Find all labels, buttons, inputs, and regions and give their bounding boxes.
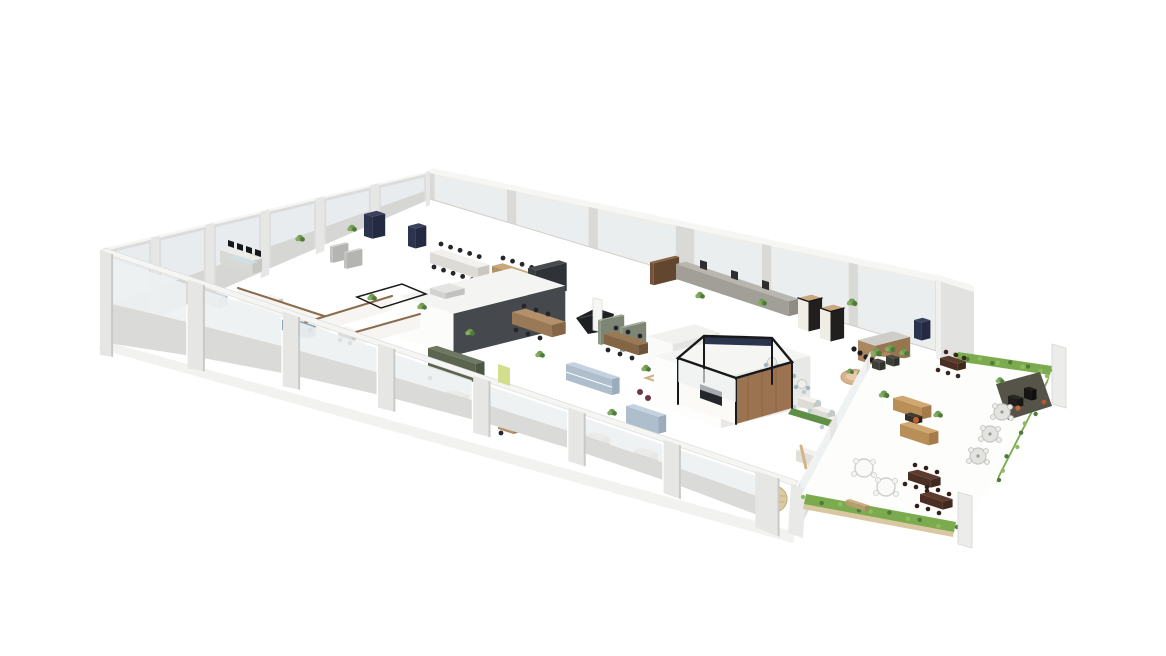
office-chair [926,507,931,512]
plant [933,413,937,417]
plant [899,351,903,355]
pillar-shade [679,445,681,499]
plant [884,393,889,398]
core-a [400,268,565,356]
plant [870,351,875,356]
plant [876,351,882,357]
plant [641,367,645,371]
plant [535,353,539,357]
plant [607,411,611,415]
plant [422,305,427,310]
pillar [378,344,393,412]
outdoor-chair [967,459,972,464]
office-chair [522,304,527,309]
hedge-leaf [917,518,921,522]
navy-cabinet-side [373,214,386,239]
office-chair [830,410,835,415]
outdoor-chair [851,471,856,476]
office-chair [915,504,920,509]
plant [996,379,1000,383]
navy-cabinet-side [416,226,427,249]
outdoor-chair [875,477,880,482]
parasol-pole [1000,410,1003,413]
office-chair [614,326,619,331]
office-chair [956,374,961,379]
outdoor-chair [892,478,897,483]
hedge-leaf [997,478,1001,482]
outdoor-chair [1008,405,1013,410]
plant [757,301,761,305]
plant [938,413,943,418]
office-chair [458,248,463,253]
phone-booth-front [820,308,831,342]
office-chair [851,346,856,351]
navy-cabinet-front [408,226,416,249]
wood-slat-partition-front [650,262,654,285]
office-chair [962,356,967,361]
pillar-shade [393,349,395,412]
fire-pit [913,417,919,423]
office-chair [514,328,519,333]
hedge-leaf [1026,364,1030,368]
pillar [473,376,488,437]
blue-shelving-side [612,377,620,395]
plant [695,294,699,298]
hedge-leaf [801,495,805,499]
office-chair [439,242,444,247]
plant [850,370,854,374]
office-chair [638,334,643,339]
floorplan-stage: 3D cutaway floor plan of an office with … [0,0,1166,656]
plant [846,370,849,373]
office-chair [501,256,506,261]
trellis-divider-front [598,320,601,345]
planter-box-side [880,361,886,370]
outdoor-chair [870,459,875,464]
hedge-leaf [1023,421,1027,425]
outdoor-chair [993,404,998,409]
outdoor-chair [981,426,986,431]
outdoor-chair [853,458,858,463]
plant [300,237,305,242]
plant [847,301,852,306]
office-chair [526,332,531,337]
pillar-shade [298,317,300,390]
plant [470,331,475,336]
outdoor-chair [997,438,1002,443]
outdoor-cabinet-side [1032,389,1037,400]
plant [890,347,895,352]
hedge-leaf [978,356,982,360]
plant [700,294,705,299]
hedge-leaf [1015,445,1019,449]
office-chair [764,363,768,367]
office-chair [637,389,643,395]
hedge-leaf [1008,360,1012,364]
office-chair [935,470,940,475]
hedge-leaf [819,501,823,505]
outdoor-chair [893,491,898,496]
office-chair [630,356,635,361]
office-chair [538,336,543,341]
office-chair [857,350,862,355]
office-chair [467,251,472,256]
office-chair [913,463,918,468]
office-chair [499,431,504,436]
hedge-leaf [1001,468,1005,472]
hedge-leaf [1004,454,1008,458]
office-chair [937,511,942,516]
outdoor-sofa-side [929,431,939,445]
plant [352,227,357,232]
hedge-leaf [936,524,940,528]
office-chair [903,482,908,487]
pillar-shade [203,285,205,372]
pillar [568,408,583,466]
office-chair [794,385,798,389]
coffee-bar-side [253,258,263,273]
pillar-shade [584,413,586,467]
plant [612,411,617,416]
plant [904,351,909,356]
phone-booth-side [831,308,845,341]
pillar-shade [489,381,491,438]
office-chair [914,485,919,490]
phone-booth-front [798,298,809,332]
outdoor-chair [991,415,996,420]
office-chair [925,485,930,490]
office-chair [441,268,446,273]
outdoor-chair [871,472,876,477]
hedge-leaf [1019,430,1023,434]
office-chair [618,352,623,357]
office-chair [816,400,821,405]
flower-pot [1042,400,1047,405]
pillar [664,440,679,499]
office-chair [645,395,651,401]
plant [367,296,371,300]
blue-shelving-side [659,415,667,434]
floorplan-3d-viewport[interactable]: 3D cutaway floor plan of an office with … [0,0,1166,656]
navy-cabinet-front [914,320,922,341]
plant [885,347,890,352]
office-chair [944,350,949,355]
office-chair [606,348,611,353]
plant [540,353,545,358]
parasol-pole [976,454,979,457]
office-chair [520,262,525,267]
navy-cabinet-side [922,320,931,340]
office-chair [954,353,959,358]
outdoor-chair [979,437,984,442]
pillar [755,471,777,536]
pillar [849,263,858,328]
plant [762,301,767,306]
office-chair [820,425,825,430]
hedge-leaf [1033,412,1037,416]
outdoor-sofa-side [922,405,932,419]
plant [465,331,469,335]
office-chair [936,368,941,373]
outdoor-chair [996,427,1001,432]
pillar [188,280,203,372]
bench-side [865,505,869,511]
pillar [426,171,430,207]
office-chair [936,488,941,493]
office-chair [448,245,453,250]
pillar-shade [111,254,113,357]
hedge-leaf [906,516,910,520]
office-chair [946,371,951,376]
pillar [283,312,298,390]
hedge-leaf [996,361,1000,365]
hedge-leaf [868,509,872,513]
wall-edge [936,280,941,359]
pillar [316,196,325,254]
screen-divider-front [344,252,347,269]
hedge-leaf [838,502,842,506]
plant [646,367,651,372]
plant [347,227,351,231]
terrace-pillar [958,492,972,548]
office-chair [806,386,810,390]
office-chair [534,308,539,313]
pillar [589,207,598,249]
plant [879,393,884,398]
kitchen-counter-side [789,299,799,317]
office-chair [510,259,515,264]
flower-pot [1015,405,1020,410]
terrace-pillar [1052,344,1066,408]
outdoor-chair [984,449,989,454]
office-chair [802,390,807,395]
office-chair [451,271,456,276]
office-chair [808,409,813,414]
terrace [800,344,1066,548]
plant [852,301,857,306]
outdoor-chair [1009,416,1014,421]
office-chair [432,265,437,270]
outdoor-chair [969,448,974,453]
parasol-pole [988,432,991,435]
hedge-leaf [990,361,994,365]
pillar-shade [778,478,780,536]
pillar [430,173,435,200]
office-chair [477,254,482,259]
planter-box-side [894,357,900,366]
office-chair [924,466,929,471]
hedge-leaf [1045,374,1049,378]
navy-cabinet-front [364,214,373,239]
office-chair [546,312,551,317]
hedge-leaf [1020,365,1024,369]
plant [1000,379,1004,383]
screen-divider-front [330,246,333,263]
cafe-table [798,380,807,389]
office-chair [626,330,631,335]
office-chair [460,274,465,279]
office-chair [947,492,952,497]
outdoor-chair [985,460,990,465]
pillar [507,190,516,225]
plant [295,237,299,241]
pillar [100,250,111,357]
plant [417,305,421,309]
outdoor-chair [873,490,878,495]
hedge-leaf [887,510,891,514]
